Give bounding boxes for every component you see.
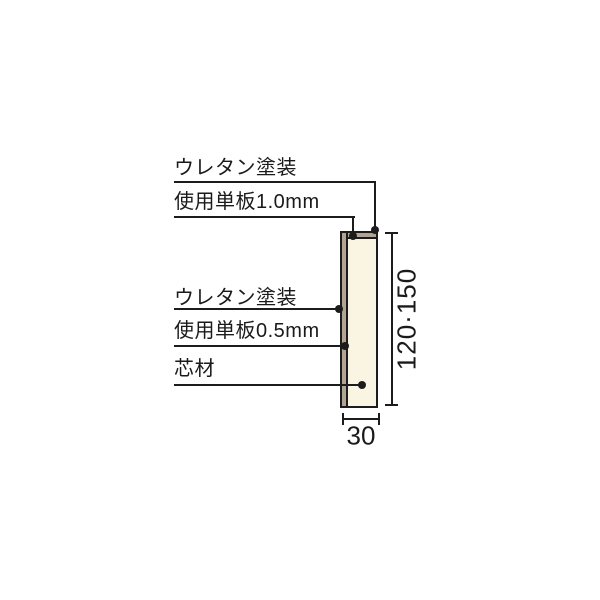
height-dimension-label: 120·150 (392, 268, 423, 370)
height-dimension-tick-top (385, 232, 398, 234)
callout-coating-top-leader (174, 181, 376, 183)
callout-core-label: 芯材 (174, 358, 215, 380)
width-dimension-tick-left (342, 413, 344, 425)
callout-veneer-top-label: 使用単板1.0mm (174, 191, 320, 213)
callout-coating-side-leader (174, 308, 342, 310)
callout-core-leader (174, 384, 364, 386)
callout-coating-top-leader-drop (374, 181, 376, 231)
width-dimension-label: 30 (347, 421, 376, 452)
veneer-layer-side (342, 233, 348, 406)
callout-veneer-side-dot (341, 342, 349, 350)
height-dimension-tick-bottom (385, 404, 398, 406)
callout-coating-top-dot (371, 226, 379, 234)
callout-core-dot (358, 381, 366, 389)
callout-coating-side-label: ウレタン塗装 (174, 287, 297, 309)
width-dimension-tick-right (378, 413, 380, 425)
callout-veneer-top-dot (349, 232, 357, 240)
callout-coating-top-label: ウレタン塗装 (174, 157, 297, 179)
callout-coating-side-dot (335, 305, 343, 313)
callout-veneer-side-leader (174, 345, 346, 347)
callout-veneer-side-label: 使用単板0.5mm (174, 320, 320, 342)
diagram-canvas: ウレタン塗装 使用単板1.0mm ウレタン塗装 使用単板0.5mm 芯材 120… (0, 0, 600, 600)
callout-veneer-top-leader (174, 216, 355, 218)
